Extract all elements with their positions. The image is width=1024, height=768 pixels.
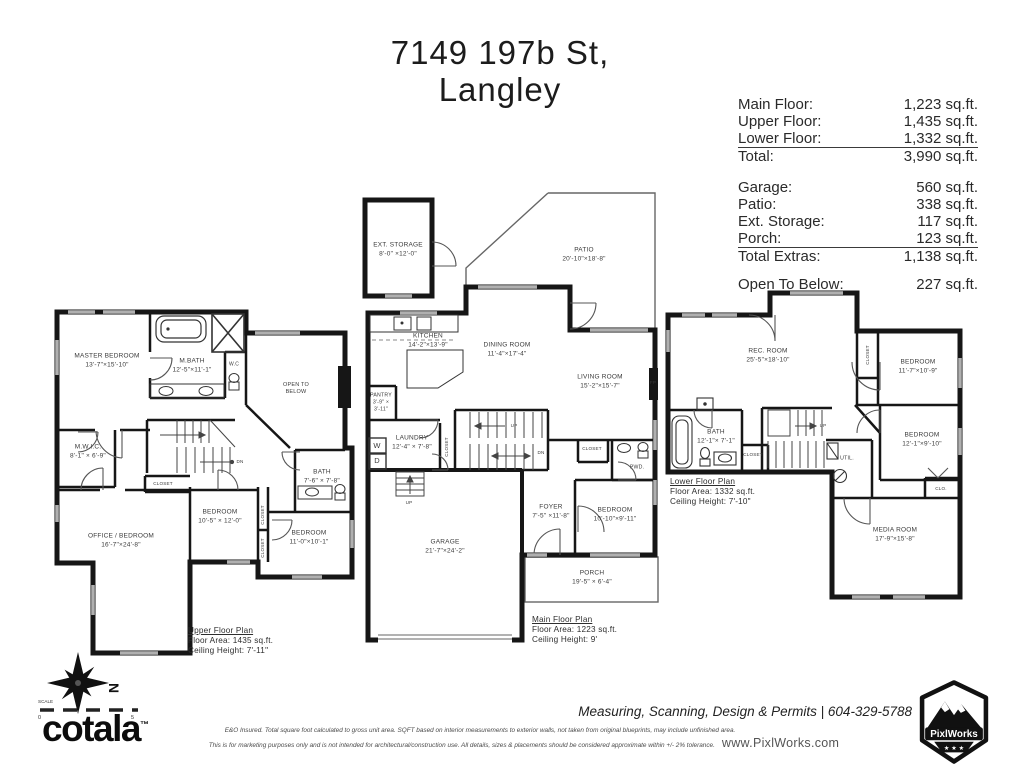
plan-area: Floor Area: 1332 sq.ft.	[670, 487, 755, 496]
main-floor-plan	[365, 193, 658, 645]
plan-ceiling: Ceiling Height: 7'-10"	[670, 497, 751, 506]
plan-area: Floor Area: 1223 sq.ft.	[532, 625, 617, 634]
disclaimer-line1: E&O Insured. Total square foot calculate…	[150, 727, 810, 734]
plan-ceiling: Ceiling Height: 9'	[532, 635, 597, 644]
floorplan-walls	[0, 0, 1024, 768]
main-floor-caption: Main Floor Plan Floor Area: 1223 sq.ft. …	[532, 615, 617, 645]
svg-text:★ ★ ★: ★ ★ ★	[944, 745, 965, 752]
svg-text:N: N	[106, 683, 122, 693]
plan-ceiling: Ceiling Height: 7'-11"	[188, 646, 268, 655]
floorplan-page: 7149 197b St, Langley Main Floor:1,223 s…	[0, 0, 1024, 768]
trademark-symbol: ™	[140, 720, 149, 730]
scale-label: SCALE	[38, 699, 53, 704]
lower-floor-plan	[668, 293, 960, 597]
upper-floor-caption: Upper Floor Plan Floor Area: 1435 sq.ft.…	[188, 626, 273, 656]
website-link: www.PixlWorks.com	[722, 736, 839, 750]
svg-text:PixlWorks: PixlWorks	[930, 729, 978, 740]
cotala-logo: cotala™	[42, 708, 149, 750]
disclaimer-line2: This is for marketing purposes only and …	[138, 736, 910, 750]
plan-title: Lower Floor Plan	[670, 477, 755, 487]
plan-title: Upper Floor Plan	[188, 626, 273, 636]
lower-floor-caption: Lower Floor Plan Floor Area: 1332 sq.ft.…	[670, 477, 755, 507]
pixlworks-logo: PixlWorks ★ ★ ★	[916, 680, 992, 764]
services-line: Measuring, Scanning, Design & Permits | …	[578, 704, 912, 719]
plan-title: Main Floor Plan	[532, 615, 617, 625]
plan-area: Floor Area: 1435 sq.ft.	[188, 636, 273, 645]
fireplace	[649, 368, 658, 400]
upper-floor-plan	[57, 312, 352, 653]
